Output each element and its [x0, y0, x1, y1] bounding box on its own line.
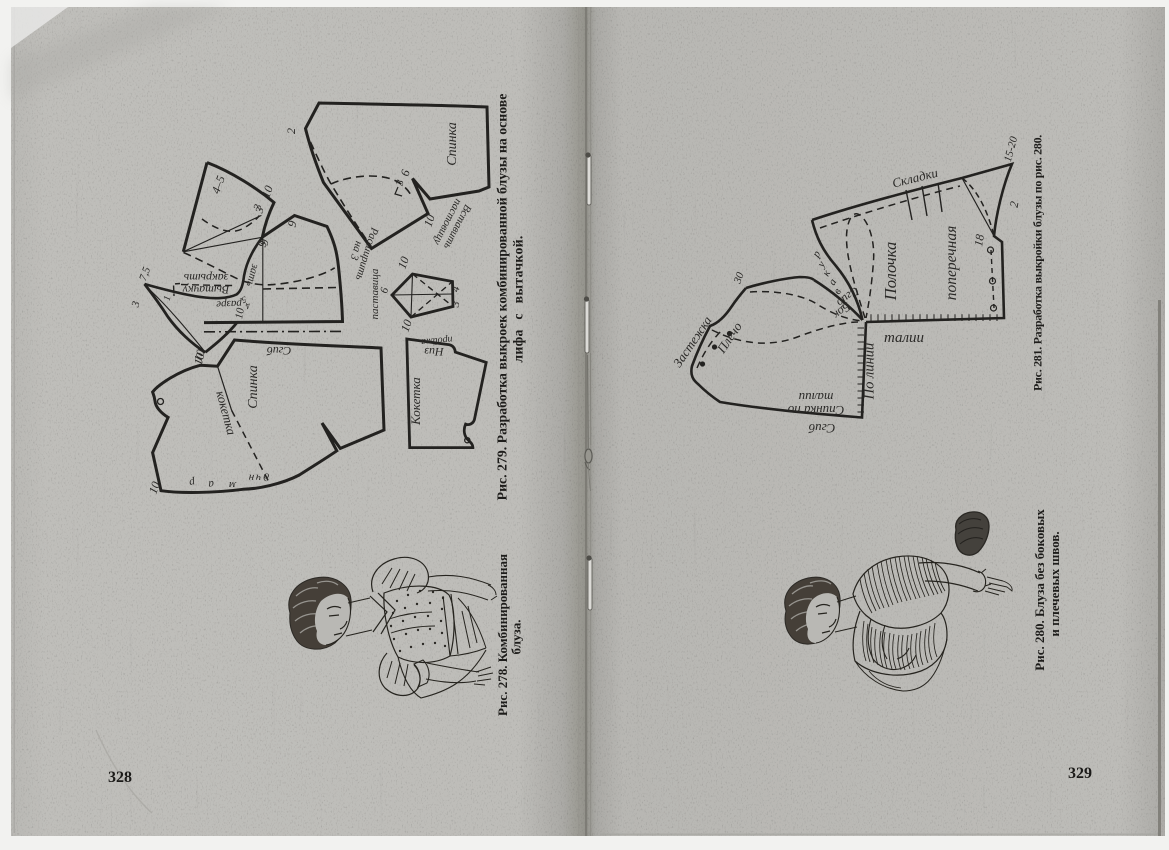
svg-text:Спинка: Спинка [246, 365, 261, 408]
svg-text:Полочка: Полочка [881, 242, 900, 301]
svg-text:2: 2 [284, 128, 298, 134]
svg-text:Рис. 280. Блуза без боковых: Рис. 280. Блуза без боковых [1032, 509, 1047, 671]
svg-text:и плечевых швов.: и плечевых швов. [1047, 531, 1062, 636]
svg-text:паставица: паставица [369, 268, 381, 319]
svg-text:м: м [229, 479, 237, 491]
svg-text:Спинка: Спинка [445, 122, 460, 165]
svg-text:талии: талии [798, 390, 833, 405]
svg-text:Кокетка: Кокетка [408, 377, 423, 426]
svg-text:Сгиб: Сгиб [266, 344, 292, 358]
svg-text:Рис. 281. Разработка выкройки: Рис. 281. Разработка выкройки блузы по р… [1031, 135, 1045, 391]
svg-text:ч: ч [255, 472, 261, 484]
svg-text:Рис. 279. Разработка выкроек к: Рис. 279. Разработка выкроек комбинирова… [495, 94, 510, 501]
svg-text:талии: талии [884, 330, 924, 346]
svg-text:лифа с вытачкой.: лифа с вытачкой. [511, 235, 526, 362]
svg-text:поперечная: поперечная [943, 226, 960, 301]
svg-text:закрыть: закрыть [183, 271, 229, 285]
svg-text:329: 329 [1068, 765, 1092, 782]
svg-text:блуза.: блуза. [509, 620, 524, 655]
svg-text:18: 18 [971, 233, 987, 247]
svg-text:Сгиб: Сгиб [808, 421, 835, 436]
svg-text:328: 328 [108, 769, 132, 786]
svg-text:По линии: По линии [862, 343, 878, 401]
